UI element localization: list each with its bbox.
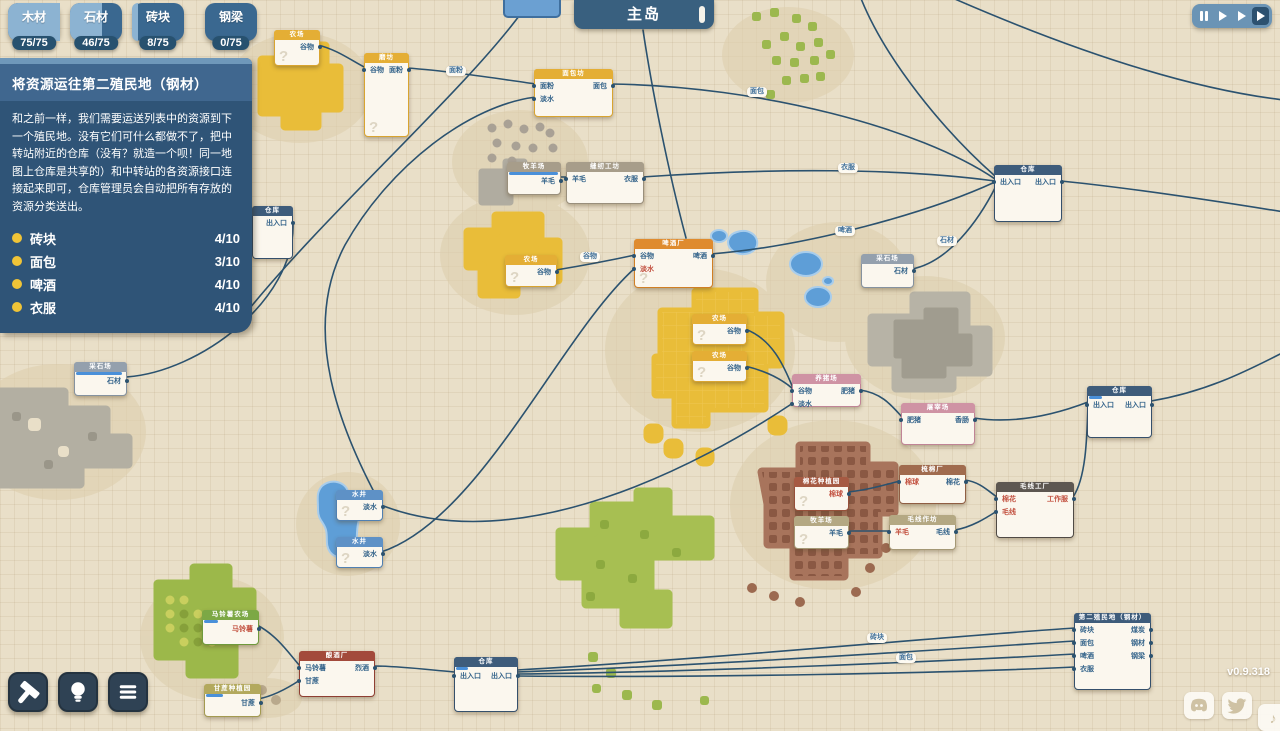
output-port[interactable]: 棉花 [946, 477, 960, 487]
question-watermark: ? [341, 503, 350, 520]
output-port[interactable]: 淡水 [363, 502, 377, 512]
port-row: 出入口 [253, 216, 292, 229]
build-button[interactable] [8, 672, 48, 712]
quest-item: 砖块4/10 [12, 227, 240, 250]
island-tab[interactable]: 主岛 [574, 0, 714, 29]
quest-title: 将资源运往第二殖民地（钢材） [0, 64, 252, 101]
resource-count: 75/75 [12, 36, 56, 50]
question-watermark: ? [510, 269, 519, 286]
resource-name: 石材 [70, 8, 122, 25]
bullet-icon [12, 302, 22, 312]
discord-button[interactable] [1184, 692, 1214, 719]
port-row: 肥猪香肠 [902, 413, 974, 426]
resource-card-2: 石材46/75 [70, 3, 122, 41]
pause-button[interactable] [1195, 7, 1212, 25]
quest-item-label: 衣服 [30, 298, 56, 317]
node-title: 采石场 [861, 254, 914, 264]
port-row: 淡水 [535, 92, 612, 105]
quest-item-progress: 4/10 [215, 277, 240, 292]
port-row: 羊毛衣服 [567, 172, 643, 185]
map-node-bakery[interactable]: 面包坊面粉面包淡水 [534, 69, 613, 117]
port-row: 羊毛毛线 [890, 525, 955, 538]
quest-item: 衣服4/10 [12, 296, 240, 319]
node-title: 农场 [692, 351, 747, 361]
port-row: 面粉面包 [535, 79, 612, 92]
map-node-sewing[interactable]: 缝纫工坊羊毛衣服 [566, 162, 644, 204]
lightbulb-icon [63, 677, 93, 707]
input-port[interactable]: 羊毛 [572, 174, 586, 184]
output-port[interactable]: 甘蔗 [241, 698, 255, 708]
music-icon: ♪ [1270, 710, 1277, 726]
output-port[interactable]: 毛线 [936, 527, 950, 537]
map-node-textile-factory[interactable]: 毛线工厂棉花工作服毛线 [996, 482, 1074, 538]
question-watermark: ? [799, 493, 808, 510]
port-row: 出入口出入口 [995, 175, 1061, 188]
input-port[interactable]: 淡水 [798, 399, 812, 409]
output-port[interactable]: 谷物 [727, 326, 741, 336]
music-button[interactable]: ♪ [1258, 704, 1280, 731]
map-node-carding-mill[interactable]: 梳棉厂棉球棉花 [899, 465, 966, 504]
map-node-yarn-workshop[interactable]: 毛线作坊羊毛毛线 [889, 515, 956, 550]
map-node-farm-top[interactable]: 农场谷物? [274, 30, 320, 66]
menu-button[interactable] [108, 672, 148, 712]
quest-item-progress: 3/10 [215, 254, 240, 269]
quest-panel: 将资源运往第二殖民地（钢材） 和之前一样，我们需要运送列表中的资源到下一个殖民地… [0, 58, 252, 333]
input-port[interactable]: 棉花 [1002, 494, 1016, 504]
pause-icon [1200, 11, 1208, 21]
resource-card-3: 砖块8/75 [132, 3, 184, 41]
map-node-distillery[interactable]: 酿酒厂马铃薯烈酒甘蔗 [299, 651, 375, 697]
twitter-button[interactable] [1222, 692, 1252, 719]
map-node-farm-2[interactable]: 农场谷物? [692, 351, 747, 382]
node-title: 水井 [336, 537, 383, 547]
menu-icon [113, 677, 143, 707]
node-title: 棉花种植园 [794, 477, 849, 487]
quest-checklist: 砖块4/10面包3/10啤酒4/10衣服4/10 [0, 221, 252, 333]
port-row: 羊毛 [508, 175, 560, 188]
input-port[interactable]: 面粉 [540, 81, 554, 91]
input-port[interactable]: 毛线 [1002, 507, 1016, 517]
quest-item-label: 啤酒 [30, 275, 56, 294]
node-title: 梳棉厂 [899, 465, 966, 475]
port-row: 甘蔗 [300, 674, 374, 687]
output-port[interactable]: 面包 [593, 81, 607, 91]
map-node-sheep-farm-2[interactable]: 牧羊场羊毛? [794, 516, 849, 549]
question-watermark: ? [799, 531, 808, 548]
input-port[interactable]: 肥猪 [907, 415, 921, 425]
node-title: 农场 [505, 255, 557, 265]
node-title: 农场 [274, 30, 320, 40]
quest-item: 啤酒4/10 [12, 273, 240, 296]
hint-button[interactable] [58, 672, 98, 712]
port-row: 衣服 [1075, 662, 1150, 675]
port-row: 砖块煤炭 [1075, 623, 1150, 636]
node-title: 毛线工厂 [996, 482, 1074, 492]
quest-item: 面包3/10 [12, 250, 240, 273]
input-port[interactable]: 出入口 [1000, 177, 1021, 187]
bullet-icon [12, 279, 22, 289]
output-port[interactable]: 出入口 [491, 671, 512, 681]
map-node-warehouse-1[interactable]: 仓库出入口出入口 [994, 165, 1062, 222]
output-port[interactable]: 啤酒 [693, 251, 707, 261]
node-title: 水井 [336, 490, 383, 500]
port-row: 面包钢材 [1075, 636, 1150, 649]
output-port[interactable]: 肥猪 [841, 386, 855, 396]
input-port[interactable]: 淡水 [540, 94, 554, 104]
node-title: 牧羊场 [507, 162, 561, 172]
node-title: 磨坊 [364, 53, 409, 63]
port-row: 毛线 [997, 505, 1073, 518]
resource-card-1: 木材75/75 [8, 3, 60, 41]
output-port[interactable]: 面粉 [389, 65, 403, 75]
quest-item-progress: 4/10 [215, 231, 240, 246]
node-title: 农场 [692, 314, 747, 324]
resource-name: 钢梁 [205, 8, 257, 25]
output-port[interactable]: 出入口 [266, 218, 287, 228]
port-row: 石材 [862, 264, 913, 277]
output-port[interactable]: 淡水 [363, 549, 377, 559]
output-port[interactable]: 谷物 [300, 42, 314, 52]
input-port[interactable]: 谷物 [640, 251, 654, 261]
node-title: 仓库 [1087, 386, 1152, 396]
map-node-warehouse-3[interactable]: 仓库出入口 [252, 206, 293, 259]
island-tab-label: 主岛 [627, 6, 661, 23]
play-button[interactable] [1214, 7, 1231, 25]
node-title: 酿酒厂 [299, 651, 375, 661]
resource-count: 8/75 [139, 36, 176, 50]
output-port[interactable]: 烈酒 [355, 663, 369, 673]
input-port[interactable]: 砖块 [1080, 625, 1094, 635]
map-node-potato-farm[interactable]: 马铃薯农场马铃薯 [202, 610, 259, 645]
input-port[interactable]: 出入口 [460, 671, 481, 681]
port-row: 石材 [75, 375, 126, 388]
twitter-icon [1227, 697, 1247, 714]
map-node-mill[interactable]: 磨坊谷物面粉? [364, 53, 409, 137]
node-title: 第二殖民地（钢材） [1074, 613, 1151, 623]
map-node-warehouse-2[interactable]: 仓库出入口出入口 [1087, 386, 1152, 438]
input-port[interactable]: 啤酒 [1080, 651, 1094, 661]
map-node-pig-farm[interactable]: 养猪场谷物肥猪淡水 [792, 374, 861, 407]
resource-card-4: 钢梁0/75 [205, 3, 257, 41]
map-node-quarry-right[interactable]: 采石场石材 [861, 254, 914, 288]
map-node-farm-1[interactable]: 农场谷物? [692, 314, 747, 345]
playback-controls [1192, 4, 1272, 28]
node-title: 仓库 [454, 657, 518, 667]
node-title: 养猪场 [792, 374, 861, 384]
hammer-icon [11, 675, 45, 709]
map-node-sheep-farm-1[interactable]: 牧羊场羊毛 [507, 162, 561, 195]
map-node-warehouse-4[interactable]: 仓库出入口出入口 [454, 657, 518, 712]
question-watermark: ? [369, 119, 378, 136]
resource-name: 砖块 [132, 8, 184, 25]
question-watermark: ? [279, 48, 288, 65]
discord-icon [1188, 697, 1210, 714]
fastest-icon [1257, 11, 1265, 21]
resource-count: 46/75 [74, 36, 118, 50]
quest-body: 和之前一样，我们需要运送列表中的资源到下一个殖民地。没有它们可什么都做不了，把中… [0, 101, 252, 221]
map-node-well-2[interactable]: 水井淡水? [336, 537, 383, 568]
input-port[interactable]: 棉球 [905, 477, 919, 487]
node-title: 面包坊 [534, 69, 613, 79]
node-title: 马铃薯农场 [202, 610, 259, 620]
version-label: v0.9.318 [1227, 666, 1270, 678]
port-row: 马铃薯烈酒 [300, 661, 374, 674]
input-port[interactable]: 出入口 [1093, 400, 1114, 410]
play-icon [1219, 11, 1227, 21]
node-title: 采石场 [74, 362, 127, 372]
output-port[interactable]: 石材 [894, 266, 908, 276]
output-port[interactable]: 谷物 [727, 363, 741, 373]
bullet-icon [12, 256, 22, 266]
output-port[interactable]: 工作服 [1047, 494, 1068, 504]
resource-name: 木材 [8, 8, 60, 25]
input-port[interactable]: 面包 [1080, 638, 1094, 648]
fast-forward-button[interactable] [1233, 7, 1250, 25]
map-node-cotton-plantation[interactable]: 棉花种植园棉球? [794, 477, 849, 511]
output-port[interactable]: 羊毛 [829, 528, 843, 538]
node-title: 啤酒厂 [634, 239, 713, 249]
output-port[interactable]: 羊毛 [541, 176, 555, 186]
quest-item-label: 面包 [30, 252, 56, 271]
map-node-brewery[interactable]: 啤酒厂谷物啤酒淡水? [634, 239, 713, 288]
quest-item-progress: 4/10 [215, 300, 240, 315]
output-port[interactable]: 煤炭 [1131, 625, 1145, 635]
port-row: 马铃薯 [203, 623, 258, 636]
fastest-button[interactable] [1252, 7, 1269, 25]
resource-count: 0/75 [212, 36, 249, 50]
output-port[interactable]: 棉球 [829, 489, 843, 499]
island-flag-icon [699, 6, 705, 23]
port-row: 棉球棉花 [900, 475, 965, 488]
port-row: 谷物啤酒 [635, 249, 712, 262]
node-title: 毛线作坊 [889, 515, 956, 525]
question-watermark: ? [697, 364, 706, 381]
output-port[interactable]: 香肠 [955, 415, 969, 425]
output-port[interactable]: 衣服 [624, 174, 638, 184]
port-row: 啤酒钢梁 [1075, 649, 1150, 662]
port-row: 甘蔗 [205, 697, 260, 710]
input-port[interactable]: 谷物 [798, 386, 812, 396]
question-watermark: ? [639, 270, 648, 287]
question-watermark: ? [341, 550, 350, 567]
map-node-butcher[interactable]: 屠宰场肥猪香肠 [901, 403, 975, 445]
map-node-farm-mid[interactable]: 农场谷物? [505, 255, 557, 287]
input-port[interactable]: 甘蔗 [305, 676, 319, 686]
node-title: 仓库 [252, 206, 293, 216]
question-watermark: ? [697, 327, 706, 344]
game-screen: { "hud": { "resources": [ {"name":"木材","… [0, 0, 1280, 720]
output-port[interactable]: 出入口 [1125, 400, 1146, 410]
node-title: 缝纫工坊 [566, 162, 644, 172]
output-port[interactable]: 谷物 [537, 267, 551, 277]
input-port[interactable]: 羊毛 [895, 527, 909, 537]
quest-item-label: 砖块 [30, 229, 56, 248]
node-title: 屠宰场 [901, 403, 975, 413]
output-port[interactable]: 钢梁 [1131, 651, 1145, 661]
port-row: 谷物面粉 [365, 63, 408, 76]
input-port[interactable]: 马铃薯 [305, 663, 326, 673]
map-node-second-colony[interactable]: 第二殖民地（钢材）砖块煤炭面包钢材啤酒钢梁衣服 [1074, 613, 1151, 690]
node-title: 甘蔗种植园 [204, 684, 261, 694]
node-title: 牧羊场 [794, 516, 849, 526]
map-node-cane-plantation[interactable]: 甘蔗种植园甘蔗 [204, 684, 261, 717]
output-port[interactable]: 石材 [107, 376, 121, 386]
port-row: 谷物肥猪 [793, 384, 860, 397]
fast-forward-icon [1238, 11, 1246, 21]
port-row: 出入口出入口 [1088, 399, 1151, 412]
output-port[interactable]: 出入口 [1035, 177, 1056, 187]
input-port[interactable]: 衣服 [1080, 664, 1094, 674]
port-row: 出入口出入口 [455, 670, 517, 683]
port-row: 棉花工作服 [997, 492, 1073, 505]
port-row: 淡水 [793, 397, 860, 410]
map-node-quarry-left[interactable]: 采石场石材 [74, 362, 127, 396]
input-port[interactable]: 谷物 [370, 65, 384, 75]
output-port[interactable]: 钢材 [1131, 638, 1145, 648]
output-port[interactable]: 马铃薯 [232, 624, 253, 634]
map-node-well-1[interactable]: 水井淡水? [336, 490, 383, 521]
bullet-icon [12, 233, 22, 243]
offscreen-station-card[interactable] [503, 0, 561, 18]
node-title: 仓库 [994, 165, 1062, 175]
